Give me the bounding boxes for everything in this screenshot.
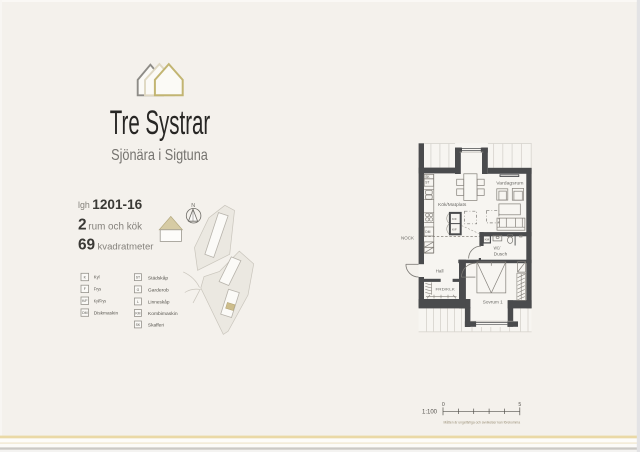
svg-text:NOCK: NOCK bbox=[401, 236, 414, 241]
svg-text:Dusch: Dusch bbox=[494, 252, 508, 257]
svg-text:ST: ST bbox=[136, 276, 140, 280]
svg-text:Hall: Hall bbox=[436, 268, 444, 273]
svg-text:G: G bbox=[137, 288, 140, 292]
svg-text:Garderob: Garderob bbox=[148, 288, 169, 293]
svg-text:DM: DM bbox=[82, 311, 88, 315]
svg-text:L: L bbox=[137, 300, 139, 304]
svg-text:FRD/KLK: FRD/KLK bbox=[436, 286, 456, 291]
svg-text:1201-16: 1201-16 bbox=[92, 197, 142, 212]
svg-text:5: 5 bbox=[518, 402, 521, 408]
svg-text:Sovrum 1: Sovrum 1 bbox=[483, 300, 504, 305]
svg-text:lgh: lgh bbox=[78, 200, 90, 210]
svg-text:Städskåp: Städskåp bbox=[148, 274, 169, 280]
svg-text:KM: KM bbox=[485, 238, 490, 242]
svg-text:Kök/Matplats: Kök/Matplats bbox=[438, 202, 466, 207]
svg-text:ST: ST bbox=[425, 181, 429, 185]
svg-text:kvadratmeter: kvadratmeter bbox=[98, 242, 155, 253]
svg-text:KM: KM bbox=[135, 311, 140, 315]
svg-text:K/F: K/F bbox=[452, 228, 457, 232]
svg-text:F: F bbox=[84, 287, 86, 291]
svg-text:DM: DM bbox=[425, 230, 430, 234]
svg-text:2: 2 bbox=[78, 217, 87, 234]
svg-text:1:100: 1:100 bbox=[422, 409, 438, 415]
svg-text:0: 0 bbox=[442, 402, 445, 408]
svg-text:Måtten är ungefärliga och avvi: Måtten är ungefärliga och avvikelser kan… bbox=[444, 420, 521, 424]
svg-text:SK: SK bbox=[136, 323, 141, 327]
svg-text:Sjönära i Sigtuna: Sjönära i Sigtuna bbox=[111, 147, 208, 165]
svg-text:Diskmaskin: Diskmaskin bbox=[94, 310, 119, 315]
svg-text:Tre Systrar: Tre Systrar bbox=[110, 104, 210, 143]
svg-text:K/F: K/F bbox=[452, 217, 457, 221]
svg-text:rum och kök: rum och kök bbox=[88, 222, 142, 233]
svg-text:Kyl/Frys: Kyl/Frys bbox=[94, 298, 107, 303]
svg-text:Skafferi: Skafferi bbox=[148, 323, 164, 328]
svg-text:Linneskåp: Linneskåp bbox=[148, 299, 170, 305]
svg-text:Kombimaskin: Kombimaskin bbox=[148, 311, 178, 316]
svg-text:N: N bbox=[191, 203, 195, 209]
svg-text:Kyl: Kyl bbox=[94, 275, 100, 280]
svg-text:WC/: WC/ bbox=[494, 246, 501, 251]
svg-text:Frys: Frys bbox=[94, 287, 102, 292]
svg-text:Vardagsrum: Vardagsrum bbox=[496, 180, 524, 185]
svg-text:69: 69 bbox=[78, 237, 95, 254]
svg-text:K/F: K/F bbox=[82, 299, 87, 303]
